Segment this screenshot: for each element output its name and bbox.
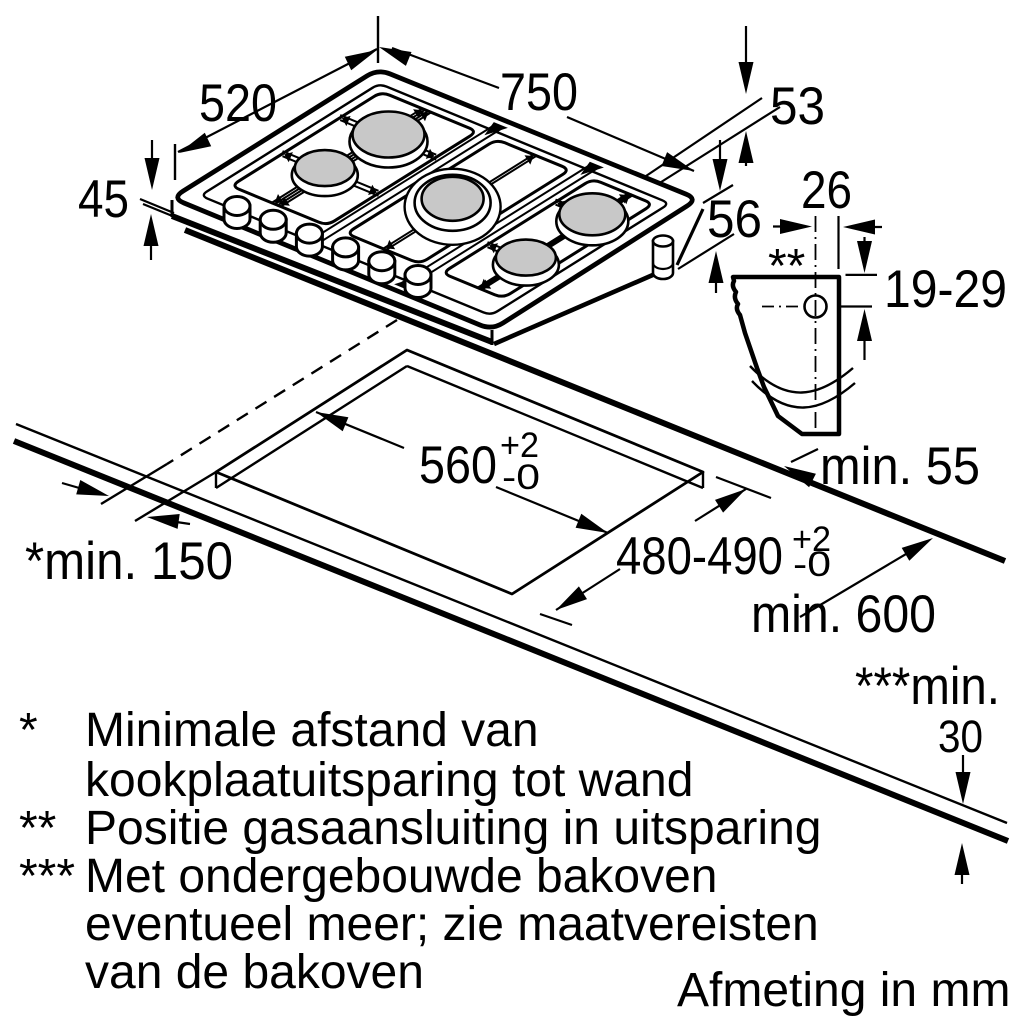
svg-text:***: *** bbox=[19, 850, 75, 903]
svg-text:kookplaatuitsparing tot wand: kookplaatuitsparing tot wand bbox=[85, 754, 693, 807]
svg-text:-0: -0 bbox=[793, 545, 831, 584]
svg-text:520: 520 bbox=[199, 74, 277, 133]
svg-text:**: ** bbox=[19, 802, 56, 855]
svg-text:53: 53 bbox=[770, 77, 825, 136]
svg-text:45: 45 bbox=[78, 170, 129, 229]
svg-text:van de bakoven: van de bakoven bbox=[85, 946, 424, 999]
svg-text:Afmeting in mm: Afmeting in mm bbox=[677, 964, 1010, 1017]
svg-text:Met ondergebouwde bakoven: Met ondergebouwde bakoven bbox=[85, 850, 717, 903]
svg-text:*: * bbox=[19, 704, 38, 757]
svg-text:**: ** bbox=[768, 240, 805, 293]
svg-text:eventueel meer; zie maatvereis: eventueel meer; zie maatvereisten bbox=[85, 898, 819, 951]
svg-text:Minimale afstand van: Minimale afstand van bbox=[85, 704, 539, 757]
svg-text:19-29: 19-29 bbox=[884, 260, 1007, 319]
svg-text:*min. 150: *min. 150 bbox=[25, 532, 233, 591]
svg-text:56: 56 bbox=[707, 190, 762, 249]
svg-text:750: 750 bbox=[500, 63, 578, 122]
svg-text:30: 30 bbox=[938, 711, 983, 762]
svg-text:min. 600: min. 600 bbox=[751, 585, 936, 644]
svg-text:560: 560 bbox=[419, 436, 497, 495]
svg-text:Positie gasaansluiting in uits: Positie gasaansluiting in uitsparing bbox=[85, 802, 821, 855]
svg-text:min. 55: min. 55 bbox=[820, 437, 980, 496]
svg-text:-0: -0 bbox=[502, 458, 540, 497]
svg-text:***min.: ***min. bbox=[855, 657, 1000, 716]
svg-text:26: 26 bbox=[801, 161, 852, 220]
svg-text:480-490: 480-490 bbox=[616, 527, 783, 586]
